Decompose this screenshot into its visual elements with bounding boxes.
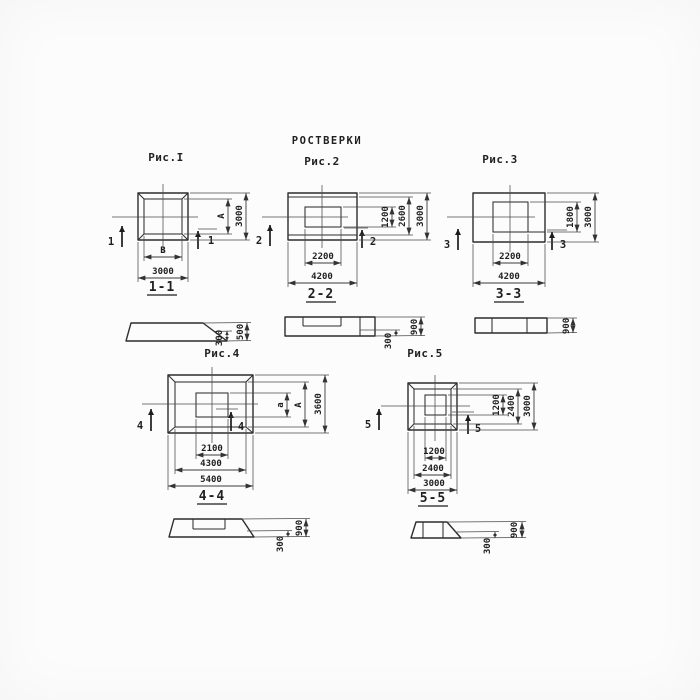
sec5-dim-height: 900	[510, 522, 520, 538]
drawing-title: РОСТВЕРКИ	[292, 135, 362, 147]
fig4-cut-left-number: 4	[137, 420, 143, 432]
figure-2: Рис.2 2 2 2200 4200 1200 2600 3000 2-2	[256, 155, 431, 349]
fig5-dim-mid-width: 2400	[422, 464, 444, 474]
fig5-section-title: 5-5	[420, 491, 446, 506]
fig1-cut-left-number: 1	[108, 236, 114, 248]
fig4-dim-outer-height: 3600	[314, 393, 324, 415]
fig2-dim-outer-width: 4200	[311, 272, 333, 282]
fig4-cut-inner-number: 4	[238, 421, 244, 433]
fig1-dim-outer-width: 3000	[152, 267, 174, 277]
figure-4: Рис.4 4 4 2100 4300 5400 а	[137, 347, 329, 552]
fig3-dim-inner-width: 2200	[499, 252, 521, 262]
fig1-section-title: 1-1	[149, 280, 175, 295]
fig5-outer-square	[408, 383, 457, 430]
fig5-label: Рис.5	[407, 347, 443, 360]
fig2-label: Рис.2	[304, 155, 340, 168]
fig4-dim-mid-width: 4300	[200, 459, 222, 469]
section-4-4: 900 300	[169, 519, 310, 553]
fig4-dim-mid-height: А	[294, 402, 304, 408]
section-5-5: 300 900	[411, 522, 526, 555]
drawing-sheet: РОСТВЕРКИ Рис.I 1 1 В 3000 А	[0, 0, 700, 700]
fig1-dim-outer-height: 3000	[235, 205, 245, 227]
fig5-cut-left-number: 5	[365, 419, 371, 431]
sec1-dim-height: 500	[236, 324, 246, 340]
sec4-dim-step: 300	[276, 536, 286, 552]
figure-3: Рис.3 3 3 2200 4200 1800 3000 3-3	[444, 153, 599, 334]
section-1-1: 500 300	[126, 323, 251, 347]
fig5-corner-chamfers	[408, 383, 457, 430]
fig2-outer-rect	[288, 193, 357, 240]
fig3-cut-inner-number: 3	[560, 239, 566, 251]
fig3-cut-left-number: 3	[444, 239, 450, 251]
fig2-edge-strips	[288, 197, 357, 235]
fig3-ext-lines	[473, 193, 599, 287]
sec2-dim-height: 900	[410, 319, 420, 335]
fig2-dim-mid-height: 2600	[398, 205, 408, 227]
fig1-cut-inner-number: 1	[208, 235, 214, 247]
sec3-dim-height: 900	[562, 318, 572, 334]
sec4-dim-height: 900	[295, 520, 305, 536]
fig2-dim-outer-height: 3000	[416, 205, 426, 227]
fig3-label: Рис.3	[482, 153, 518, 166]
fig5-dim-recess-width: 1200	[423, 447, 445, 457]
fig4-mid-rect	[175, 382, 246, 427]
figure-5: Рис.5 5 5 1200 2400 3000 1200	[365, 347, 538, 554]
fig1-dim-inner-height: А	[217, 213, 227, 219]
fig5-dim-outer-width: 3000	[423, 479, 445, 489]
fig5-ext-lines	[408, 383, 538, 494]
sec1-dim-step: 300	[215, 330, 225, 346]
fig5-dim-recess-height: 1200	[492, 394, 502, 416]
fig5-cut-inner-number: 5	[475, 423, 481, 435]
fig4-dim-recess-height: а	[276, 402, 286, 407]
figure-1: Рис.I 1 1 В 3000 А 3000	[108, 151, 251, 346]
fig4-dim-outer-width: 5400	[200, 475, 222, 485]
fig5-recess-square	[425, 395, 446, 415]
fig1-dim-inner-width: В	[160, 246, 166, 256]
section-3-3: 900	[475, 318, 577, 334]
fig3-dim-outer-width: 4200	[498, 272, 520, 282]
fig3-outer-rect	[473, 193, 545, 242]
fig4-label: Рис.4	[204, 347, 240, 360]
fig3-dim-inner-height: 1800	[566, 206, 576, 228]
fig1-label: Рис.I	[148, 151, 184, 164]
fig3-dim-outer-height: 3000	[584, 206, 594, 228]
fig5-mid-square	[414, 389, 451, 424]
fig1-centerlines	[112, 184, 198, 252]
fig2-cut-left-number: 2	[256, 235, 262, 247]
fig5-dim-outer-height: 3000	[523, 395, 533, 417]
fig2-dim-inner-height: 1200	[381, 206, 391, 228]
fig4-dim-recess-width: 2100	[201, 444, 223, 454]
fig2-dim-inner-width: 2200	[312, 252, 334, 262]
technical-drawing: РОСТВЕРКИ Рис.I 1 1 В 3000 А	[0, 0, 700, 700]
fig4-section-title: 4-4	[199, 489, 225, 504]
fig3-section-title: 3-3	[496, 287, 522, 302]
sec5-dim-step: 300	[483, 538, 493, 554]
fig2-section-title: 2-2	[308, 287, 334, 302]
sec2-dim-step: 300	[384, 333, 394, 349]
fig2-cut-inner-number: 2	[370, 236, 376, 248]
section-2-2: 900 300	[285, 317, 425, 349]
fig5-dim-mid-height: 2400	[507, 395, 517, 417]
